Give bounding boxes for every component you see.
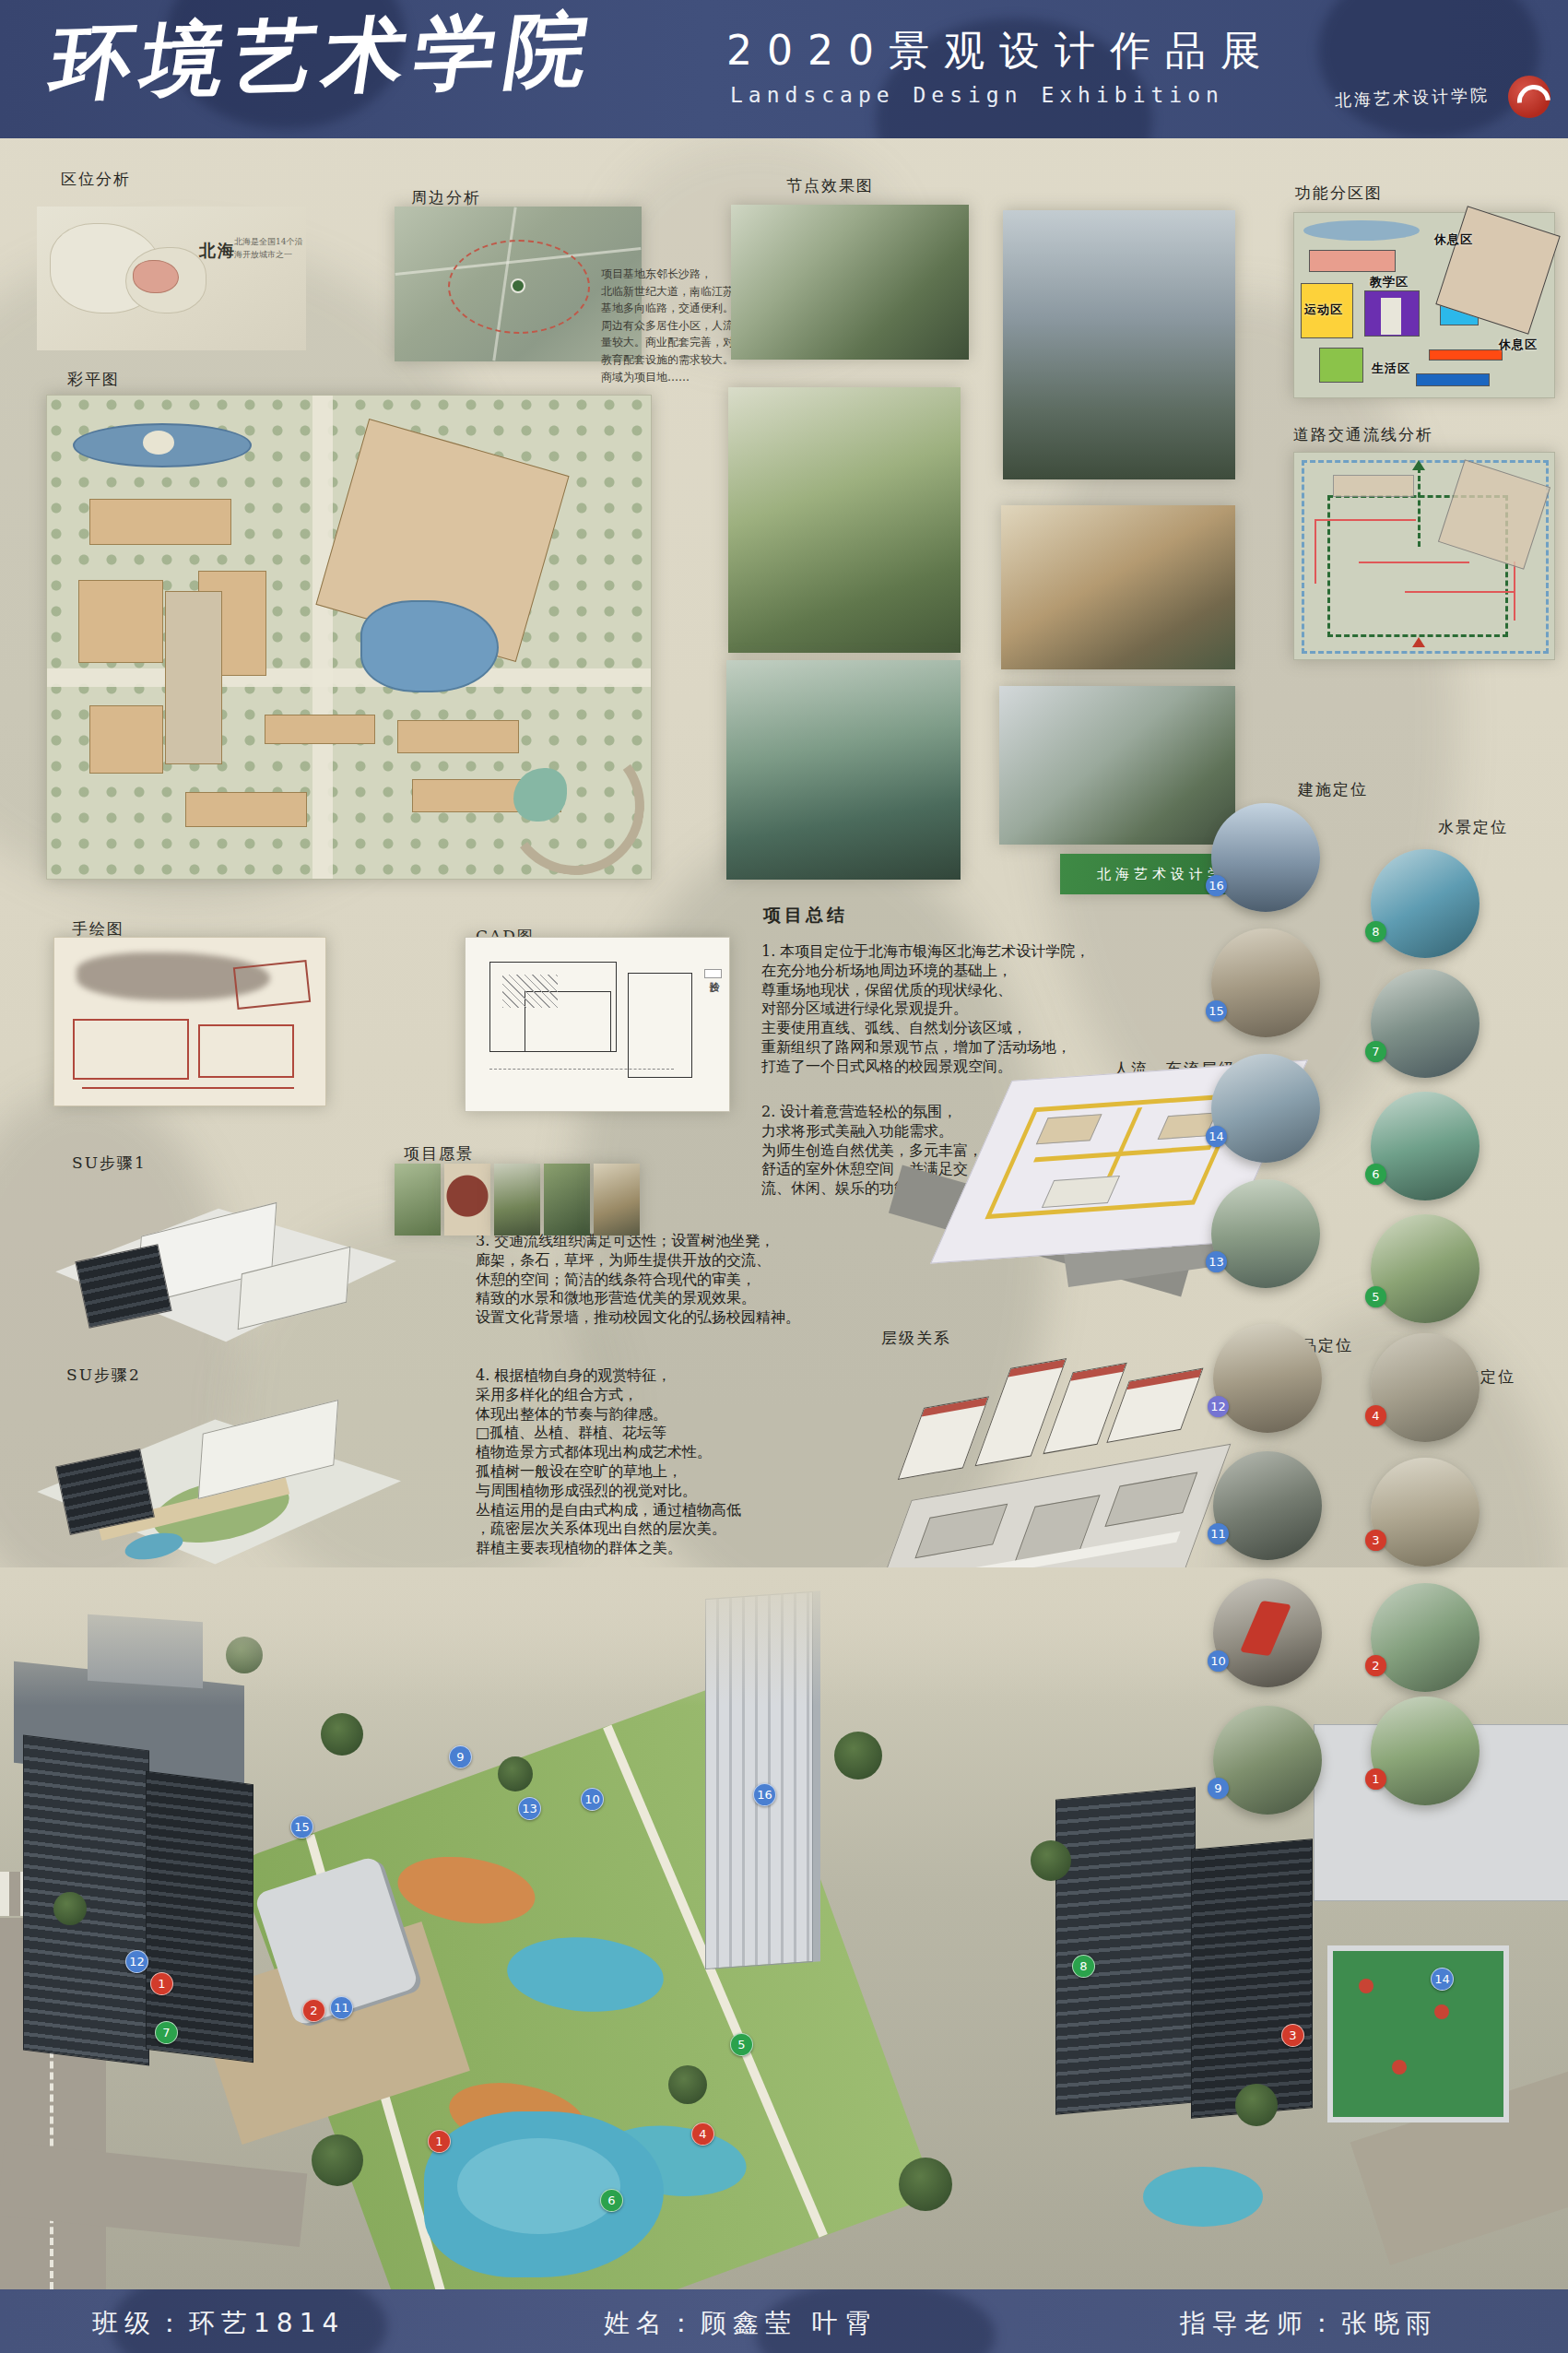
vision-collage [395,1164,649,1237]
exhibition-poster: 环境艺术学院 2020景观设计作品展 Landscape Design Exhi… [0,0,1568,2353]
water-photo [1371,1092,1480,1200]
building-badge: 14 [1206,1126,1227,1147]
footer-class-info: 班级：环艺1814 [92,2306,345,2341]
feature-photo [1213,1451,1322,1560]
building-badge: 15 [1206,1000,1227,1022]
feature-photo-circle: 9 [1213,1706,1322,1815]
plan-building [265,715,375,744]
plan-building [397,720,519,753]
zone-teaching-notch [1381,298,1401,335]
location-map-image: 北海 北海是全国14个沿海开放城市之一 [37,207,306,350]
city-label: 北海 [199,240,236,262]
aerial-marker: 11 [330,1996,353,2019]
sketch-red-line [82,1087,294,1089]
section-label-building-pos: 建施定位 [1298,779,1368,800]
traffic-diagram [1293,452,1555,660]
summary-paragraph-1: 1. 本项目定位于北海市银海区北海艺术设计学院， 在充分地分析场地周边环境的基础… [761,942,1115,1077]
header-band: 环境艺术学院 2020景观设计作品展 Landscape Design Exhi… [0,0,1568,138]
master-plan-image [46,395,652,880]
water-photo-circle: 5 [1371,1214,1480,1323]
vision-thumb [444,1164,490,1236]
section-label-color-plan: 彩平图 [67,369,120,390]
section-label-function-zoning: 功能分区图 [1295,183,1383,204]
su-step2-model-image [14,1379,401,1595]
vision-thumb [395,1164,441,1236]
tower-left-b [146,1771,253,2063]
vision-thumb [594,1164,640,1236]
paving-badge: 3 [1365,1530,1386,1551]
aerial-marker: 13 [518,1797,541,1820]
aerial-marker: 4 [691,2122,714,2146]
poster-title: 环境艺术学院 [46,7,603,102]
vision-thumb [544,1164,590,1236]
water-badge: 6 [1365,1164,1386,1185]
gray-plan-block [1104,1472,1197,1527]
traffic-green-axis [1418,467,1421,547]
tree-blob [53,1892,87,1925]
section-label-summary: 项目总结 [763,904,848,928]
summary-paragraph-4: 4. 根据植物自身的观赏特征， 采用多样化的组合方式， 体现出整体的节奏与韵律感… [476,1366,848,1558]
node-photo-building [1003,210,1235,479]
zone-label-rest1: 休息区 [1434,231,1473,248]
section-label-location: 区位分析 [61,169,131,190]
zone-label-teaching: 教学区 [1370,274,1409,290]
section-label-node-effects: 节点效果图 [786,175,874,196]
traffic-red-line [1514,562,1515,621]
tree-blob [1235,2084,1278,2126]
traffic-red-line [1315,519,1416,521]
building-photo [1211,803,1320,912]
aerial-marker: 2 [302,1999,325,2022]
tree-blob [668,2065,707,2104]
paving-photo-circle: 4 [1371,1333,1480,1442]
roof-red-dot [1434,2004,1449,2019]
plan-center-pond [360,600,499,692]
building-photo-circle: 13 [1211,1179,1320,1288]
aerial-top-fade [0,1567,1568,1706]
paving-photo [1371,1697,1480,1805]
cad-outline [628,973,692,1078]
footer-student-names: 姓名：顾鑫莹 叶霄 [604,2306,877,2341]
poster-subtitle: 2020景观设计作品展 [726,24,1276,78]
aerial-marker: 1 [150,1972,173,1995]
sketch-red-rect [198,1024,294,1078]
tower-right-b [1191,1839,1313,2119]
feature-photo [1213,1706,1322,1815]
water-badge: 5 [1365,1286,1386,1307]
footer-advisor: 指导老师：张晓雨 [1180,2306,1438,2341]
traffic-red-line [1405,591,1515,593]
school-logo-icon [1508,76,1550,118]
building-photo-circle: 14 [1211,1054,1320,1163]
cad-hatch [502,975,558,1008]
paving-photo [1371,1583,1480,1692]
summary-paragraph-3: 3. 交通流线组织满足可达性；设置树池坐凳， 廊架，条石，草坪，为师生提供开放的… [476,1232,848,1328]
su2-pool [123,1529,185,1565]
tree-blob [1031,1840,1071,1881]
node-photo-pond [726,660,961,880]
paving-photo [1371,1333,1480,1442]
water-badge: 8 [1365,921,1386,942]
feature-photo [1213,1324,1322,1433]
building-photo [1211,1054,1320,1163]
water-photo [1371,1214,1480,1323]
node-photo-walkway [728,387,961,653]
massing-building [898,1396,989,1480]
roof-red-dot [1392,2060,1407,2075]
feature-badge: 12 [1208,1396,1229,1417]
paving-badge: 4 [1365,1405,1386,1426]
section-label-water-pos: 水景定位 [1438,817,1508,838]
highlight-region-shape [133,260,179,293]
sketch-red-rect [233,960,311,1010]
vision-thumb [494,1164,540,1236]
cad-dashed-line [489,1069,674,1070]
plan-building [89,705,163,774]
poster-subtitle-en: Landscape Design Exhibition [730,83,1224,107]
traffic-red-line [1315,519,1316,584]
section-label-traffic: 道路交通流线分析 [1293,424,1433,445]
zone-pink-block [1309,250,1396,272]
tower-right-a [1055,1787,1196,2114]
traffic-arrow-bottom-icon [1412,637,1425,647]
aerial-marker: 16 [753,1783,776,1806]
traffic-red-line [1359,562,1469,563]
lawn-leaf-orange [394,1849,539,1932]
tower-left-a [23,1735,149,2066]
building-photo-circle: 16 [1211,803,1320,912]
aerial-marker: 10 [581,1788,604,1811]
zone-label-sports: 运动区 [1304,302,1343,318]
lawn-leaf-teal [504,1933,666,2017]
aerial-marker: 15 [290,1815,313,1839]
traffic-building-shape [1333,475,1414,497]
paving-photo-circle: 2 [1371,1583,1480,1692]
water-badge: 7 [1365,1041,1386,1062]
plan-building [78,580,163,663]
tree-blob [498,1756,533,1791]
paving-photo [1371,1458,1480,1567]
cad-drawing-image: 长沙路 [465,937,730,1112]
plan-pond-island [143,431,174,455]
plan-path-vertical [312,396,333,879]
paving-badge: 2 [1365,1655,1386,1676]
section-label-surrounding: 周边分析 [411,187,481,208]
water-photo [1371,849,1480,958]
location-note: 北海是全国14个沿海开放城市之一 [234,236,304,261]
zone-label-living: 生活区 [1372,361,1410,377]
aerial-marker: 6 [600,2189,623,2212]
gray-plan-block [914,1504,1008,1558]
building-green-roof [1327,1945,1509,2122]
pool-right-small [1143,2167,1263,2227]
feature-badge: 10 [1208,1650,1229,1672]
plan-building [89,499,231,545]
aerial-marker: 3 [1281,2024,1304,2047]
hand-drawing-image [53,937,326,1106]
building-badge: 13 [1206,1251,1227,1272]
aerial-marker: 5 [730,2033,753,2056]
water-photo-circle: 6 [1371,1092,1480,1200]
site-center-dot [511,278,525,293]
aerial-marker: 7 [155,2021,178,2044]
aerial-marker: 8 [1072,1955,1095,1978]
plan-building [185,792,307,827]
aerial-marker: 9 [449,1745,472,1768]
feature-photo-circle: 10 [1213,1579,1322,1687]
su-step1-model-image [26,1169,396,1374]
building-photo-circle: 15 [1211,928,1320,1037]
paving-photo-circle: 3 [1371,1458,1480,1567]
paving-badge: 1 [1365,1768,1386,1790]
feature-photo-circle: 12 [1213,1324,1322,1433]
roof-red-dot [1359,1979,1373,1993]
feature-photo-circle: 11 [1213,1451,1322,1560]
su1-dark-block [75,1244,171,1329]
header-ink-swirl [1318,0,1539,138]
section-label-vision: 项目愿景 [404,1143,474,1165]
tree-blob [312,2134,363,2186]
cad-road-label: 长沙路 [704,969,722,978]
feature-badge: 11 [1208,1523,1229,1544]
node-photo-courtyard [999,686,1235,845]
building-photo [1211,1179,1320,1288]
building-photo [1211,928,1320,1037]
node-photo-street [731,205,969,360]
building-badge: 16 [1206,875,1227,896]
sketch-red-rect [73,1019,189,1080]
water-photo-circle: 7 [1371,969,1480,1078]
aerial-render-image [0,1567,1568,2289]
zone-blue-block [1416,373,1490,386]
zone-label-rest2: 休息区 [1499,337,1538,353]
plan-path-horizontal [47,668,651,687]
node-photo-pergola [1001,505,1235,669]
water-photo [1371,969,1480,1078]
tree-blob [321,1713,363,1756]
zoning-pond-shape [1303,220,1420,241]
paving-photo-circle: 1 [1371,1697,1480,1805]
pool-highlight [457,2138,620,2234]
zone-green-block [1319,348,1363,383]
aerial-marker: 12 [125,1950,148,1973]
footer-band: 班级：环艺1814 姓名：顾鑫莹 叶霄 指导老师：张晓雨 [0,2289,1568,2353]
plan-building-tower [165,591,222,764]
aerial-marker: 1 [428,2130,451,2153]
tree-blob [834,1732,882,1780]
water-photo-circle: 8 [1371,849,1480,958]
feature-badge: 9 [1208,1778,1229,1799]
zone-orange-block [1429,349,1503,361]
tree-blob [899,2158,952,2211]
traffic-arrow-up-icon [1412,460,1425,470]
aerial-marker: 14 [1431,1968,1454,1991]
function-zoning-diagram: 运动区 教学区 休息区 生活区 休息区 [1293,212,1555,398]
